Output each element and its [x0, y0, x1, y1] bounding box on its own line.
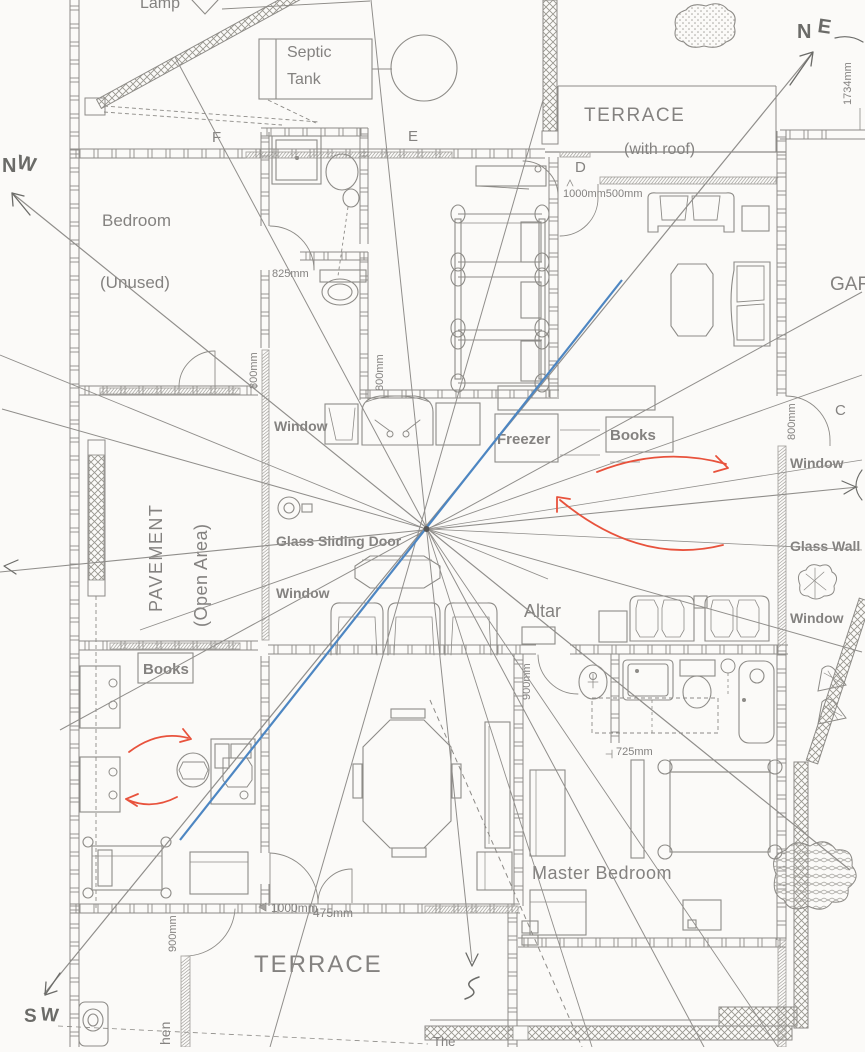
svg-text:825mm: 825mm: [272, 268, 309, 280]
svg-text:Window: Window: [790, 455, 844, 471]
svg-text:The: The: [433, 1034, 455, 1047]
svg-text:TERRACE: TERRACE: [584, 105, 685, 126]
svg-text:TERRACE: TERRACE: [254, 951, 383, 978]
svg-text:C: C: [835, 402, 846, 419]
svg-text:D: D: [575, 159, 586, 176]
svg-text:900mm: 900mm: [521, 663, 533, 700]
svg-text:(Open Area): (Open Area): [191, 523, 211, 627]
svg-text:Books: Books: [610, 427, 656, 444]
svg-text:Glass Wall: Glass Wall: [790, 538, 860, 554]
svg-text:1000mm500mm: 1000mm500mm: [563, 188, 642, 200]
svg-text:GAR: GAR: [830, 274, 865, 295]
svg-text:N: N: [797, 21, 811, 43]
svg-text:hen: hen: [157, 1022, 173, 1045]
svg-text:Septic: Septic: [287, 44, 331, 61]
svg-text:(with roof): (with roof): [624, 141, 695, 158]
svg-text:(Unused): (Unused): [100, 273, 170, 292]
svg-text:Master Bedroom: Master Bedroom: [532, 863, 672, 883]
svg-text:Lamp: Lamp: [140, 0, 180, 12]
svg-text:475mm: 475mm: [313, 906, 353, 920]
svg-text:F: F: [212, 129, 221, 146]
svg-text:Bedroom: Bedroom: [102, 211, 171, 230]
svg-text:1734mm: 1734mm: [842, 62, 854, 105]
svg-text:W: W: [39, 1004, 59, 1027]
svg-text:N: N: [2, 155, 16, 177]
svg-text:800mm: 800mm: [786, 403, 798, 440]
svg-text:800mm: 800mm: [374, 354, 386, 391]
svg-text:E: E: [408, 128, 418, 145]
svg-text:Tank: Tank: [287, 71, 322, 88]
svg-text:S: S: [24, 1006, 37, 1027]
svg-text:Freezer: Freezer: [497, 431, 551, 448]
svg-text:Glass Sliding Door: Glass Sliding Door: [276, 533, 402, 549]
svg-text:1000mm: 1000mm: [271, 901, 318, 915]
svg-text:800mm: 800mm: [248, 352, 260, 389]
svg-text:Window: Window: [790, 610, 844, 626]
svg-text:900mm: 900mm: [167, 915, 179, 952]
svg-text:725mm: 725mm: [616, 746, 653, 758]
svg-text:PAVEMENT: PAVEMENT: [146, 504, 166, 612]
